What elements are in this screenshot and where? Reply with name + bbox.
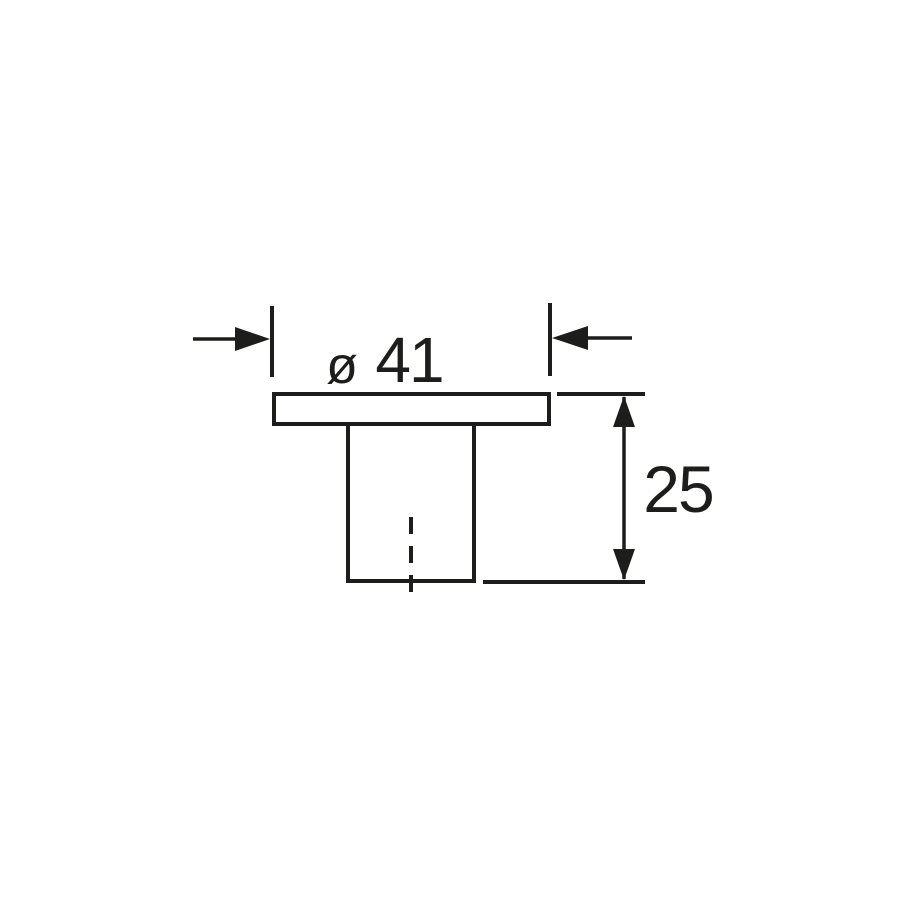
diameter-symbol: ø [326, 337, 358, 395]
technical-drawing-canvas: ø 41 25 [0, 0, 900, 900]
diameter-arrowhead-left-icon [235, 327, 270, 351]
height-arrowhead-down-icon [613, 549, 635, 580]
diameter-dimension: ø 41 [193, 303, 632, 396]
height-value-label: 25 [643, 452, 712, 526]
flange-outline [274, 394, 549, 424]
diameter-arrowhead-right-icon [552, 326, 588, 350]
diameter-value-label: 41 [375, 324, 442, 396]
height-arrowhead-up-icon [613, 396, 635, 427]
drawing-page: ø 41 25 [0, 0, 900, 900]
